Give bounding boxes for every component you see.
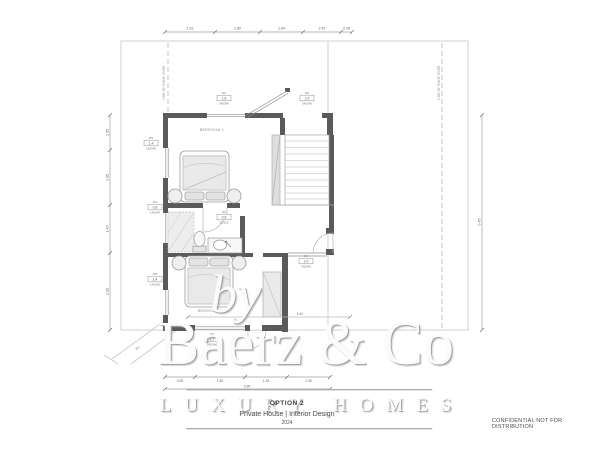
tag-d2: D2 0.8 82/210	[217, 210, 231, 225]
room-label-bedroom-1: BEDROOM 1	[200, 128, 224, 132]
title-option: OPTION 2	[132, 400, 442, 407]
svg-text:D1: D1	[304, 254, 308, 258]
sink-icon	[208, 238, 242, 253]
svg-text:1.6: 1.6	[222, 96, 227, 100]
tag-w3: W3 1.4 140/240	[144, 136, 158, 151]
svg-text:W2: W2	[305, 91, 310, 95]
tag-w2: W2 2.0 240/240	[300, 91, 314, 106]
wardrobe	[263, 272, 281, 317]
bed-2	[172, 256, 246, 307]
svg-text:140/240: 140/240	[146, 147, 157, 151]
dim-right-label: 6.45	[478, 219, 482, 226]
svg-text:2.0: 2.0	[304, 259, 309, 263]
roof-line-label-left: LINE OF ROOF OVER	[162, 65, 166, 100]
dim-chain-left	[108, 113, 112, 332]
svg-text:W6: W6	[210, 332, 215, 336]
stairs	[272, 135, 334, 205]
svg-text:1.50: 1.50	[217, 379, 224, 383]
shower	[168, 212, 194, 252]
tag-w6: W6 1.7 240/140	[205, 332, 219, 347]
svg-text:0.8: 0.8	[153, 205, 158, 209]
svg-text:1.4: 1.4	[153, 277, 158, 281]
svg-text:1.4: 1.4	[149, 141, 154, 145]
bed-1	[168, 151, 241, 203]
interior-dim-label: 6.40	[297, 312, 304, 316]
dim-chain-top	[163, 30, 354, 34]
svg-text:D2: D2	[222, 210, 226, 214]
svg-text:240/140: 240/140	[207, 343, 218, 347]
svg-text:82/210: 82/210	[220, 221, 229, 225]
svg-text:1.80: 1.80	[234, 27, 241, 31]
svg-text:0.35: 0.35	[343, 27, 350, 31]
dim-top-labels: 1.51 1.80 1.64 2.42 0.35	[187, 27, 351, 31]
confidential-note: CONFIDENTIAL NOT FOR DISTRIBUTION	[492, 418, 600, 430]
dim-bottom-labels: 0.90 1.50 1.25 1.30 4.95	[177, 379, 312, 389]
svg-text:W4: W4	[153, 200, 158, 204]
svg-text:140/240: 140/240	[150, 211, 161, 215]
roof-line-label-right: LINE OF ROOF OVER	[437, 65, 441, 100]
svg-text:1.25: 1.25	[263, 379, 270, 383]
tag-w4: W4 0.8 140/240	[148, 200, 162, 215]
svg-text:240/240: 240/240	[219, 102, 230, 106]
dim-left-labels: 1.05 1.65 1.45 2.30	[106, 129, 110, 295]
svg-text:140/240: 140/240	[301, 265, 312, 269]
svg-text:1.51: 1.51	[187, 27, 194, 31]
title-block: OPTION 2 Private House | Interior Design…	[132, 400, 442, 426]
title-year: 2024	[132, 420, 442, 426]
svg-text:1.64: 1.64	[278, 27, 285, 31]
title-project: Private House | Interior Design	[132, 411, 442, 418]
svg-text:1.05: 1.05	[106, 129, 110, 136]
svg-text:1.65: 1.65	[106, 174, 110, 181]
tag-w1: W1 1.6 240/240	[217, 91, 231, 106]
svg-text:0.8: 0.8	[222, 215, 227, 219]
svg-text:240/240: 240/240	[302, 102, 313, 106]
svg-text:W3: W3	[149, 136, 154, 140]
toilet-icon	[193, 232, 206, 253]
tag-w5: W5 1.4 140/240	[148, 272, 162, 287]
svg-text:2.42: 2.42	[319, 27, 326, 31]
svg-text:W1: W1	[222, 91, 227, 95]
svg-text:2.0: 2.0	[305, 96, 310, 100]
floorplan-drawing: LINE OF ROOF OVER LINE OF ROOF OVER	[0, 0, 600, 450]
dim-chain-bottom	[163, 375, 332, 391]
room-label-bedroom-2: BEDROOM 2	[198, 309, 222, 313]
svg-text:2.30: 2.30	[106, 288, 110, 295]
dim-diagonal-label: 4.5	[134, 345, 140, 351]
svg-text:140/240: 140/240	[150, 283, 161, 287]
svg-text:1.45: 1.45	[106, 226, 110, 233]
svg-text:W5: W5	[153, 272, 158, 276]
svg-text:1.7: 1.7	[210, 337, 215, 341]
floorplan-page: { "watermark": { "by_text": "by", "brand…	[0, 0, 600, 450]
svg-text:4.95: 4.95	[244, 385, 251, 389]
svg-text:1.30: 1.30	[305, 379, 312, 383]
svg-text:0.90: 0.90	[177, 379, 184, 383]
